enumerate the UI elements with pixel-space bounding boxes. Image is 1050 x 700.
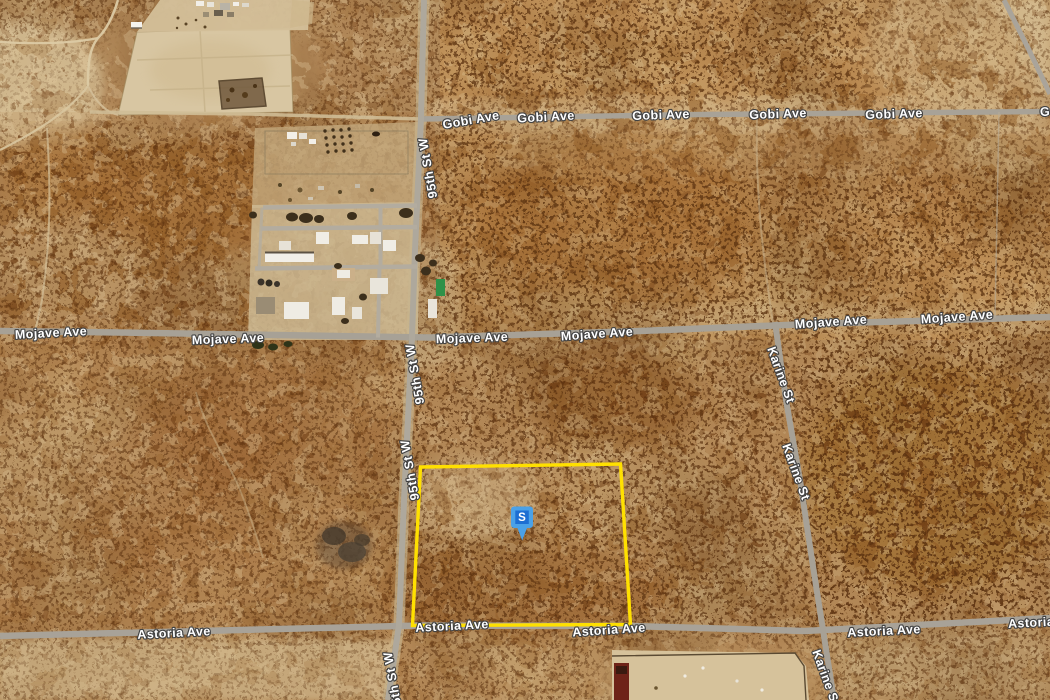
svg-text:Mojave Ave: Mojave Ave [436, 330, 509, 347]
svg-text:Gobi: Gobi [1040, 104, 1050, 119]
svg-text:Astoria Av: Astoria Av [1008, 614, 1050, 631]
svg-text:Mojave Ave: Mojave Ave [192, 331, 265, 348]
svg-text:Gobi Ave: Gobi Ave [749, 106, 807, 122]
svg-text:Gobi Ave: Gobi Ave [632, 107, 690, 123]
svg-text:Gobi Ave: Gobi Ave [865, 106, 923, 122]
svg-text:S: S [518, 512, 526, 524]
